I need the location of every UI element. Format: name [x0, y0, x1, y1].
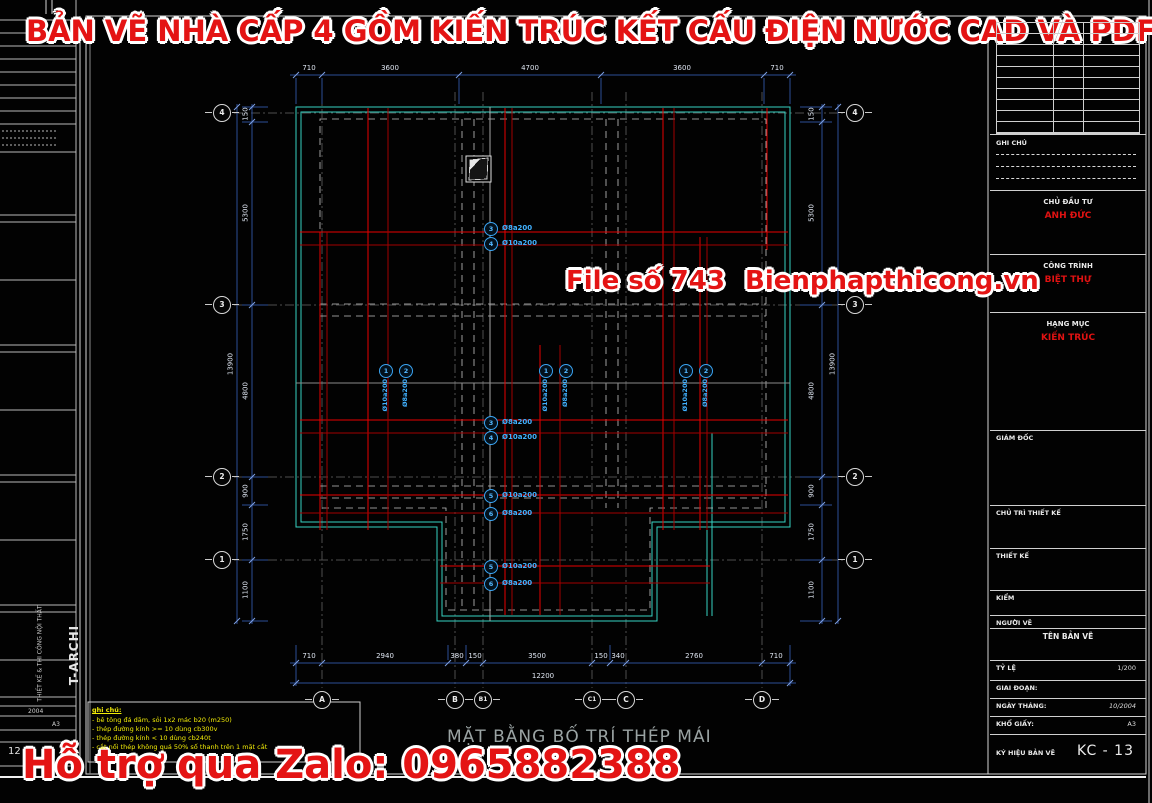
titleblock-paper-value: A3 [1127, 720, 1136, 728]
rebar-callout-circle: 2 [399, 364, 413, 378]
dim-label: 710 [302, 65, 315, 72]
rebar-callout-label: Ø10a200 [381, 379, 389, 412]
titleblock-design-label: THIẾT KẾ [996, 552, 1029, 560]
titleblock-paper-label: KHỔ GIẤY: [996, 720, 1034, 728]
titleblock-drafter-row: NGƯỜI VẼ [990, 615, 1146, 628]
dim-label: 4800 [243, 382, 250, 400]
grid-bubble-col: B [446, 691, 464, 709]
dim-label: 3500 [528, 653, 546, 660]
rebar-callout-label: Ø10a200 [502, 240, 537, 247]
titleblock-investor-box: CHỦ ĐẦU TƯ ANH ĐỨC [990, 190, 1146, 254]
dim-total-label: 13900 [830, 353, 837, 375]
dim-total-label: 12200 [532, 673, 554, 680]
dim-label: 150 [594, 653, 607, 660]
plan-title: MẶT BẰNG BỐ TRÍ THÉP MÁI [447, 727, 712, 747]
rebar-callout-label: Ø10a200 [541, 379, 549, 412]
dim-label: 1750 [243, 523, 250, 541]
left-sheet-paper: A3 [52, 721, 60, 728]
titleblock-project-box: CÔNG TRÌNH BIỆT THỰ [990, 254, 1146, 312]
dim-total-label: 13900 [228, 353, 235, 375]
dim-label: 340 [611, 653, 624, 660]
titleblock-scale-value: 1/200 [1117, 664, 1136, 672]
titleblock-design-row: THIẾT KẾ [990, 548, 1146, 590]
dim-label: 4700 [521, 65, 539, 72]
rebar-callout-circle: 4 [484, 431, 498, 445]
brand-logo-vertical: T-ARCHI [67, 625, 81, 685]
rebar-callout-circle: 2 [559, 364, 573, 378]
titleblock-paper-row: KHỔ GIẤY: A3 [990, 716, 1146, 734]
dim-label: 1750 [809, 523, 816, 541]
grid-bubble-row: 3 [213, 296, 231, 314]
titleblock-investor-label: CHỦ ĐẦU TƯ [990, 198, 1146, 206]
rebar-callout-label: Ø8a200 [502, 510, 532, 517]
dim-label: 3600 [381, 65, 399, 72]
titleblock-project-label: CÔNG TRÌNH [990, 262, 1146, 270]
titleblock-notes-dashline [996, 154, 1136, 155]
cad-linework [0, 0, 1152, 803]
titleblock-drawing-name-row: TÊN BẢN VẼ [990, 628, 1146, 660]
titleblock-scale-row: TỶ LỆ 1/200 [990, 660, 1146, 680]
rebar-callout-label: Ø8a200 [502, 225, 532, 232]
grid-bubble-row: 4 [213, 104, 231, 122]
titleblock-drawing-name-label: TÊN BẢN VẼ [1043, 632, 1093, 641]
titleblock-lead-row: CHỦ TRÌ THIẾT KẾ [990, 505, 1146, 548]
grid-bubble-col: C1 [583, 691, 601, 709]
titleblock-director-label: GIÁM ĐỐC [996, 434, 1033, 442]
titleblock-stage-row: GIAI ĐOẠN: [990, 680, 1146, 698]
titleblock-lead-label: CHỦ TRÌ THIẾT KẾ [996, 509, 1061, 517]
titleblock-category-box: HẠNG MỤC KIẾN TRÚC [990, 312, 1146, 430]
dim-label: 5300 [243, 204, 250, 222]
titleblock-code-label: KÝ HIỆU BẢN VẼ [996, 749, 1055, 757]
dim-label: 2940 [376, 653, 394, 660]
rebar-callout-circle: 6 [484, 507, 498, 521]
dim-label: 150 [809, 107, 816, 120]
dim-label: 1100 [243, 581, 250, 599]
rebar-callout-label: Ø8a200 [502, 419, 532, 426]
titleblock-scale-label: TỶ LỆ [996, 664, 1016, 672]
grid-bubble-row: 1 [213, 551, 231, 569]
grid-bubble-col: B1 [474, 691, 492, 709]
rebar-callout-label: Ø8a200 [561, 379, 569, 407]
rebar-callout-circle: 3 [484, 222, 498, 236]
titleblock-director-row: GIÁM ĐỐC [990, 430, 1146, 505]
revision-table [996, 22, 1140, 134]
dim-label: 150 [243, 107, 250, 120]
dim-label: 3600 [673, 65, 691, 72]
grid-lines [234, 92, 844, 688]
titleblock-notes-box: GHI CHÚ [990, 134, 1146, 188]
grid-bubble-row: 3 [846, 296, 864, 314]
dim-label: 900 [809, 484, 816, 497]
dim-label: 710 [770, 65, 783, 72]
top-banner-text: BẢN VẼ NHÀ CẤP 4 GỒM KIẾN TRÚC KẾT CẤU Đ… [26, 14, 1152, 48]
grid-bubble-col: D [753, 691, 771, 709]
rebar-callout-circle: 5 [484, 560, 498, 574]
dim-label: 380 [450, 653, 463, 660]
grid-bubble-row: 4 [846, 104, 864, 122]
titleblock-code-value: KC - 13 [1077, 743, 1134, 759]
notes-line: - thép đường kính < 10 dùng cb240t [92, 734, 211, 742]
rebar-callout-circle: 6 [484, 577, 498, 591]
titleblock-category-label: HẠNG MỤC [990, 320, 1146, 328]
titleblock-code-row: KÝ HIỆU BẢN VẼ KC - 13 [990, 734, 1146, 774]
rebar-callout-label: Ø10a200 [502, 563, 537, 570]
dim-label: 710 [769, 653, 782, 660]
titleblock-stage-label: GIAI ĐOẠN: [996, 684, 1038, 692]
opening-marker [466, 156, 491, 182]
dim-label: 900 [243, 484, 250, 497]
rebar-callout-label: Ø8a200 [502, 580, 532, 587]
titleblock-notes-dashline [996, 166, 1136, 167]
rebar-callout-circle: 3 [484, 416, 498, 430]
titleblock-drafter-label: NGƯỜI VẼ [996, 619, 1032, 627]
notes-line: - cắt nối thép không quá 50% số thanh tr… [92, 743, 267, 751]
dim-label: 150 [468, 653, 481, 660]
rebar-callout-label: Ø8a200 [401, 379, 409, 407]
rebar-callout-label: Ø10a200 [502, 434, 537, 441]
dimension-ticks [234, 72, 841, 686]
titleblock-project-value: BIỆT THỰ [990, 275, 1146, 285]
titleblock-check-row: KIỂM [990, 590, 1146, 615]
rebar-callout-circle: 1 [379, 364, 393, 378]
rebar-callout-circle: 1 [679, 364, 693, 378]
dim-label: 5300 [809, 204, 816, 222]
dim-label: 4800 [809, 382, 816, 400]
watermark-file-number: File số 743 [566, 266, 725, 296]
titleblock-investor-value: ANH ĐỨC [990, 211, 1146, 221]
rebar-callout-label: Ø8a200 [701, 379, 709, 407]
titleblock-notes-dashline [996, 178, 1136, 179]
grid-bubble-row: 1 [846, 551, 864, 569]
dim-label: 1100 [809, 581, 816, 599]
titleblock-date-value: 10/2004 [1109, 702, 1136, 710]
rebar-callout-label: Ø10a200 [681, 379, 689, 412]
grid-bubble-row: 2 [846, 468, 864, 486]
cad-viewport: BẢN VẼ NHÀ CẤP 4 GỒM KIẾN TRÚC KẾT CẤU Đ… [0, 0, 1152, 803]
rebar-callout-label: Ø10a200 [502, 492, 537, 499]
left-sheet-number: 12 [8, 746, 21, 757]
notes-line: - thép đường kính >= 10 dùng cb300v [92, 725, 218, 733]
dim-label: 710 [302, 653, 315, 660]
titleblock-notes-label: GHI CHÚ [996, 139, 1027, 147]
left-sheet-date: 2004 [28, 708, 43, 715]
rebar-callout-circle: 1 [539, 364, 553, 378]
brand-tagline-vertical: THIẾT KẾ & THI CÔNG NỘI THẤT [37, 605, 44, 701]
titleblock-date-label: NGÀY THÁNG: [996, 702, 1046, 710]
notes-line: - bê tông đá dăm, sỏi 1x2 mác b20 (m250) [92, 716, 232, 724]
rebar-lines [300, 108, 788, 615]
grid-bubble-col: A [313, 691, 331, 709]
notes-header: ghi chú: [92, 706, 121, 714]
rebar-callout-circle: 2 [699, 364, 713, 378]
grid-bubble-col: C [617, 691, 635, 709]
rebar-callout-circle: 4 [484, 237, 498, 251]
grid-bubble-row: 2 [213, 468, 231, 486]
titleblock-category-value: KIẾN TRÚC [990, 333, 1146, 343]
rebar-callout-circle: 5 [484, 489, 498, 503]
titleblock-date-row: NGÀY THÁNG: 10/2004 [990, 698, 1146, 716]
titleblock-check-label: KIỂM [996, 594, 1014, 602]
dim-label: 2760 [685, 653, 703, 660]
